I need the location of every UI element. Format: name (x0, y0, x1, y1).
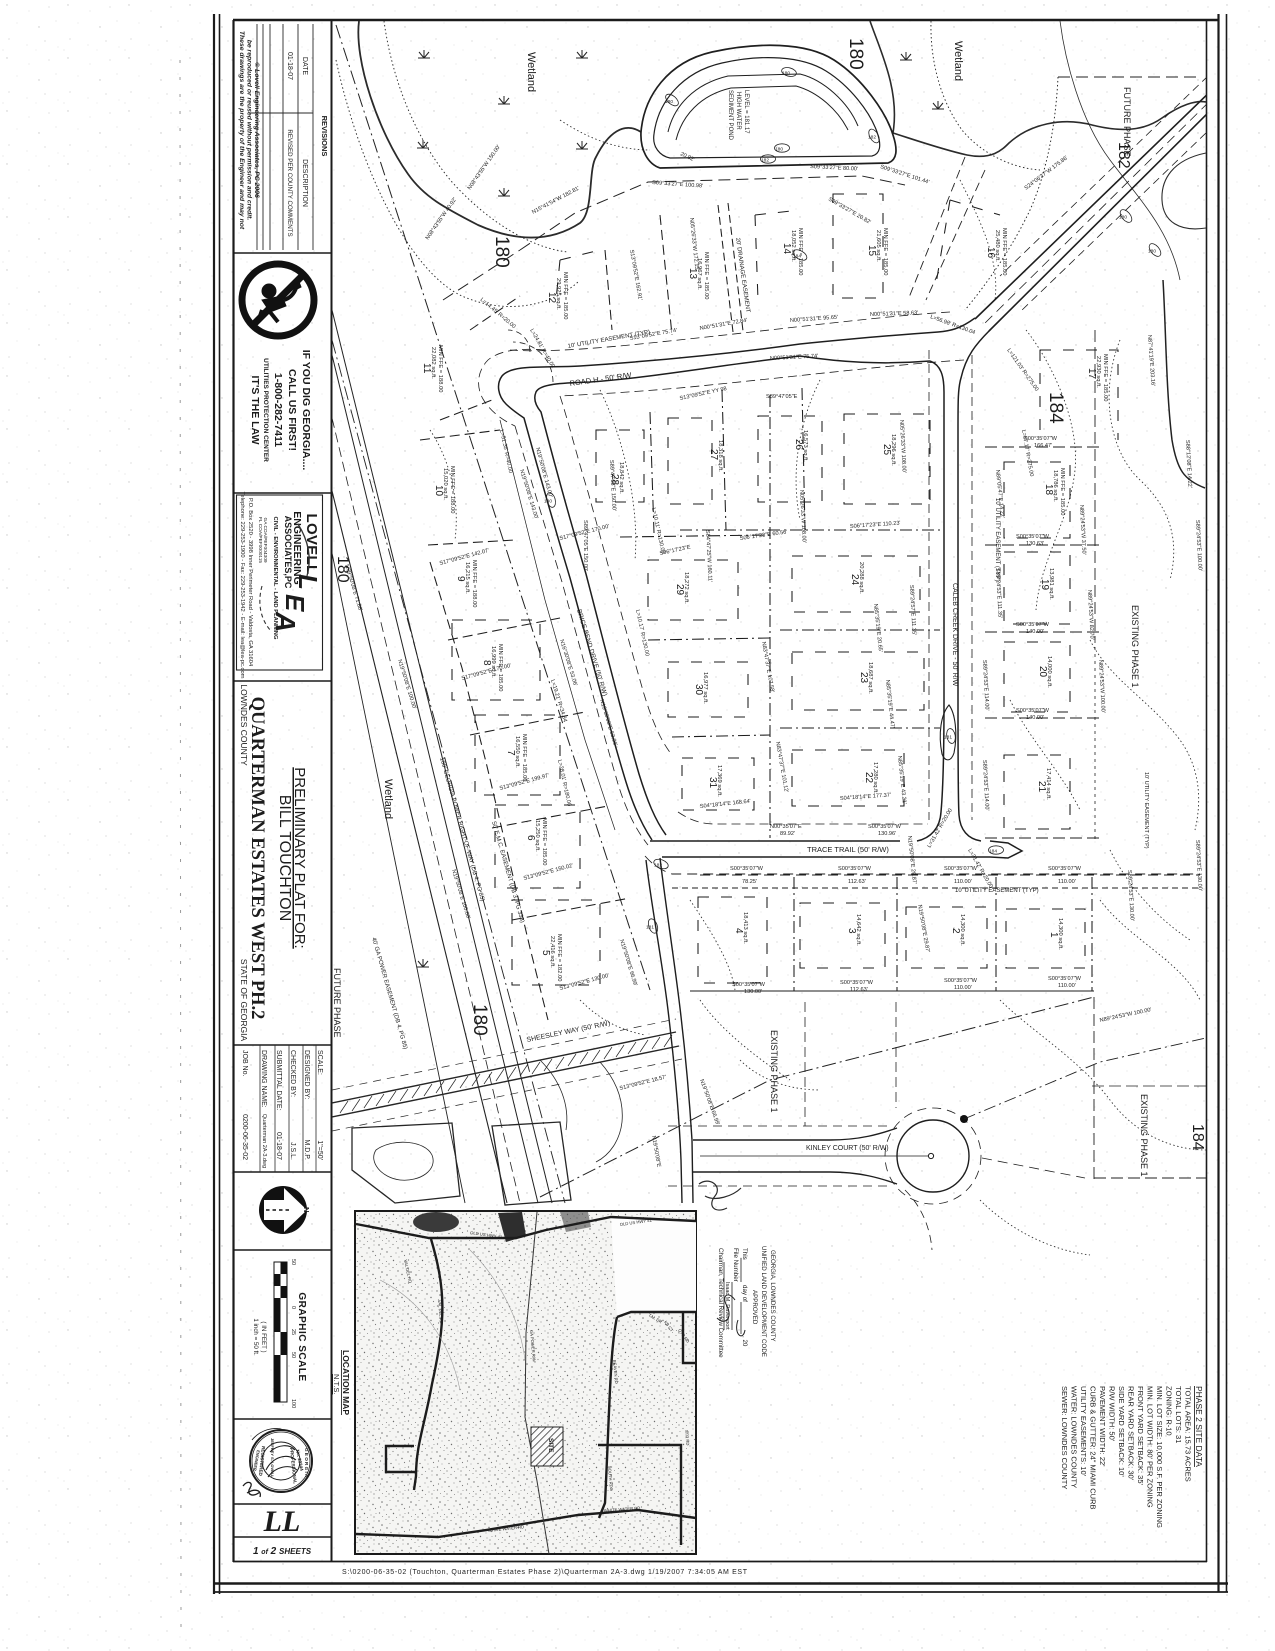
svg-text:KINLEY COURT (50' R/W): KINLEY COURT (50' R/W) (806, 1145, 889, 1152)
svg-text:S:\0200-06-35-02 (Touchton, Qu: S:\0200-06-35-02 (Touchton, Quarterman E… (342, 1569, 748, 1576)
svg-text:J.S.L.: J.S.L. (289, 1142, 296, 1160)
svg-text:MIN FFE = 185.00: MIN FFE = 185.00 (562, 272, 568, 320)
svg-text:This: This (741, 1248, 748, 1260)
svg-text:182: 182 (761, 158, 769, 164)
svg-text:0: 0 (290, 1306, 296, 1309)
svg-text:File Number: File Number (732, 1248, 739, 1282)
svg-text:REVISIONS: REVISIONS (320, 116, 329, 157)
svg-text:22,416 sq.ft.: 22,416 sq.ft. (549, 936, 555, 968)
svg-text:22,930 sq.ft.: 22,930 sq.ft. (1095, 356, 1101, 388)
svg-text:22,082 sq.ft.: 22,082 sq.ft. (430, 347, 436, 379)
svg-text:130.00': 130.00' (744, 989, 762, 995)
svg-text:These drawings are the propert: These drawings are the property of the E… (238, 31, 245, 230)
svg-text:14,300 sq.ft.: 14,300 sq.ft. (959, 914, 965, 946)
svg-text:IF YOU DIG GEORGIA....: IF YOU DIG GEORGIA.... (300, 350, 312, 471)
svg-text:day of: day of (741, 1285, 748, 1302)
svg-text:SEWER: LOWNDES COUNTY: SEWER: LOWNDES COUNTY (1060, 1386, 1069, 1489)
svg-text:be reproduced or reused withou: be reproduced or reused without permissi… (246, 40, 253, 221)
svg-text:181: 181 (944, 735, 952, 741)
svg-text:130.63': 130.63' (1026, 541, 1044, 547)
svg-text:180: 180 (775, 147, 783, 153)
svg-text:DRAWING NAME:: DRAWING NAME: (260, 1050, 267, 1108)
svg-text:100: 100 (290, 1399, 296, 1408)
svg-text:L: L (293, 574, 323, 590)
svg-text:S00°35'07"W: S00°35'07"W (868, 824, 902, 830)
svg-text:180: 180 (544, 499, 552, 505)
svg-text:18,786 sq.ft.: 18,786 sq.ft. (1052, 470, 1058, 502)
svg-text:P.O. Box 2520 - 3998 Inner P: P.O. Box 2520 - 3998 Inner Perimeter Roa… (247, 498, 253, 667)
svg-text:16,977 sq.ft.: 16,977 sq.ft. (702, 672, 708, 704)
svg-text:TOTAL AREA: 15.73 ACRES: TOTAL AREA: 15.73 ACRES (1184, 1386, 1193, 1482)
svg-text:MIN FFE = 188.00: MIN FFE = 188.00 (437, 345, 443, 393)
svg-text:78.25': 78.25' (742, 879, 757, 885)
svg-text:MIN FFE = 185.00: MIN FFE = 185.00 (521, 734, 527, 782)
svg-text:110.00': 110.00' (1058, 879, 1076, 885)
svg-text:S00°35'07"W: S00°35'07"W (944, 978, 978, 984)
svg-text:1 inch = 50 ft.: 1 inch = 50 ft. (252, 1318, 259, 1356)
svg-text:17,369 sq.ft.: 17,369 sq.ft. (716, 765, 722, 797)
svg-text:180: 180 (491, 236, 512, 268)
svg-text:CHECKED BY:: CHECKED BY: (289, 1050, 296, 1097)
svg-text:, 20: , 20 (741, 1336, 748, 1347)
svg-text:21,605 sq.ft.: 21,605 sq.ft. (875, 230, 881, 262)
svg-text:CALL US FIRST!: CALL US FIRST! (286, 369, 298, 451)
svg-text:UTILITY EASEMENTS: 10': UTILITY EASEMENTS: 10' (1079, 1386, 1088, 1477)
svg-text:166.47': 166.47' (1034, 443, 1052, 449)
svg-text:TRACE TRAIL (50' R/W): TRACE TRAIL (50' R/W) (807, 845, 889, 854)
svg-text:140.00': 140.00' (1026, 715, 1044, 721)
svg-text:UNIFIED LAND DEVELOPMENT CODE: UNIFIED LAND DEVELOPMENT CODE (760, 1246, 767, 1357)
svg-text:E: E (280, 594, 310, 612)
svg-text:180: 180 (469, 1004, 490, 1036)
svg-text:Wetland: Wetland (525, 52, 537, 92)
svg-text:LEVEL = 181.17: LEVEL = 181.17 (743, 90, 749, 134)
svg-text:SCALE:: SCALE: (316, 1050, 323, 1075)
svg-text:112.63': 112.63' (850, 987, 868, 993)
svg-text:STATE OF GEORGIA: STATE OF GEORGIA (239, 959, 249, 1042)
svg-text:MIN FFE = 185.00: MIN FFE = 185.00 (703, 252, 709, 300)
svg-text:QUARTERMAN ESTATES WEST PH.2: QUARTERMAN ESTATES WEST PH.2 (247, 697, 267, 1020)
svg-text:18,296 sq.ft.: 18,296 sq.ft. (890, 434, 896, 466)
svg-text:FRONT YARD SETBACK: 35': FRONT YARD SETBACK: 35' (1136, 1386, 1145, 1486)
svg-text:Wetland: Wetland (382, 779, 394, 819)
svg-text:MIN FFE = 185.00: MIN FFE = 185.00 (541, 818, 547, 866)
svg-text:01-18-07: 01-18-07 (275, 1132, 282, 1160)
svg-text:S00°35'07"W: S00°35'07"W (1016, 534, 1050, 540)
svg-text:16,573 sq.ft.: 16,573 sq.ft. (802, 430, 808, 462)
svg-text:( IN FEET ): ( IN FEET ) (260, 1321, 267, 1352)
svg-text:PHASE 2 SITE DATA: PHASE 2 SITE DATA (1194, 1386, 1204, 1467)
svg-text:MIN. LOT SIZE: 10,000 S.F. PER: MIN. LOT SIZE: 10,000 S.F. PER ZONING (1155, 1386, 1164, 1528)
svg-text:S00°35'07"W: S00°35'07"W (732, 982, 766, 988)
svg-text:184: 184 (1189, 1124, 1206, 1151)
svg-text:180: 180 (845, 38, 866, 70)
svg-text:01-18-07: 01-18-07 (286, 52, 293, 80)
svg-text:180: 180 (782, 71, 790, 77)
svg-text:25: 25 (290, 1329, 296, 1335)
svg-text:S00°35'07"W: S00°35'07"W (1048, 976, 1082, 982)
svg-text:SIDE YARD SETBACK: 10': SIDE YARD SETBACK: 10' (1117, 1386, 1126, 1477)
svg-text:SEDIMENT POND: SEDIMENT POND (727, 90, 733, 141)
svg-text:REVISED PER COUNTY COMMENTS: REVISED PER COUNTY COMMENTS (286, 129, 293, 236)
svg-text:M.D.P.: M.D.P. (303, 1140, 310, 1161)
svg-text:18,687 sq.ft.: 18,687 sq.ft. (867, 662, 873, 694)
svg-text:MIN FFE = 188.00: MIN FFE = 188.00 (471, 560, 477, 608)
svg-text:18,842 sq.ft.: 18,842 sq.ft. (618, 462, 624, 494)
svg-text:Chairman, Technical Review Com: Chairman, Technical Review Committee (717, 1248, 724, 1358)
svg-text:MIN FFE = 182.00: MIN FFE = 182.00 (556, 934, 562, 982)
svg-text:18,318 sq.ft.: 18,318 sq.ft. (717, 440, 723, 472)
svg-text:17,280 sq.ft.: 17,280 sq.ft. (872, 762, 878, 794)
svg-text:REAR YARD SETBACK: 30': REAR YARD SETBACK: 30' (1127, 1386, 1136, 1481)
svg-text:GEORGIA, LOWNDES COUNTY: GEORGIA, LOWNDES COUNTY (769, 1250, 776, 1341)
svg-text:APPROVED: APPROVED (751, 1290, 758, 1325)
svg-text:TOTAL LOTS: 31: TOTAL LOTS: 31 (1174, 1386, 1183, 1443)
svg-text:25,480 sq.ft.: 25,480 sq.ft. (994, 230, 1000, 262)
svg-text:S00°35'07"W: S00°35'07"W (840, 980, 874, 986)
svg-text:DESIGNED BY:: DESIGNED BY: (303, 1050, 310, 1099)
svg-text:180: 180 (1148, 249, 1156, 255)
svg-text:1"=50': 1"=50' (316, 1140, 323, 1160)
svg-text:LOWNDES COUNTY: LOWNDES COUNTY (239, 684, 249, 766)
svg-text:LOVELL: LOVELL (303, 514, 320, 575)
svg-text:ZONING: R-10: ZONING: R-10 (1165, 1386, 1174, 1436)
svg-text:Telephone: 229-253-1900 - Fax:: Telephone: 229-253-1900 - Fax: 229-253-1… (239, 492, 245, 679)
svg-text:18,272 sq.ft.: 18,272 sq.ft. (683, 572, 689, 604)
svg-text:182: 182 (868, 135, 876, 141)
svg-text:DESCRIPTION: DESCRIPTION (301, 159, 308, 207)
svg-text:ASSOCIATES,PC: ASSOCIATES,PC (283, 516, 293, 589)
svg-text:SUBMITTAL DATE:: SUBMITTAL DATE: (275, 1050, 282, 1111)
svg-text:JEFFREY S. LOVELL: JEFFREY S. LOVELL (270, 1438, 275, 1478)
svg-text:FL COA/PEF0000115: FL COA/PEF0000115 (257, 517, 263, 563)
svg-text:Quarterman 2A-3.dwg: Quarterman 2A-3.dwg (261, 1114, 267, 1168)
svg-text:14,000 sq.ft.: 14,000 sq.ft. (1046, 656, 1052, 688)
svg-text:184: 184 (989, 849, 997, 855)
svg-text:182: 182 (654, 863, 662, 869)
svg-text:130.96': 130.96' (878, 831, 896, 837)
svg-text:MIN FFE = 185.00: MIN FFE = 185.00 (882, 228, 888, 276)
svg-text:JOB No.: JOB No. (241, 1050, 248, 1077)
svg-text:MIN FFE = 188.00: MIN FFE = 188.00 (449, 466, 455, 514)
svg-text:180: 180 (665, 99, 673, 105)
svg-text:13,981 sq.ft.: 13,981 sq.ft. (1048, 568, 1054, 600)
svg-text:BILL TOUCHTON: BILL TOUCHTON (276, 795, 293, 922)
svg-text:R/W WIDTH: 50': R/W WIDTH: 50' (1108, 1386, 1117, 1442)
svg-text:S00°35'07"W: S00°35'07"W (1024, 436, 1058, 442)
svg-text:S00°35'07"W: S00°35'07"W (730, 866, 764, 872)
svg-text:WATER: LOWNDES COUNTY: WATER: LOWNDES COUNTY (1070, 1386, 1079, 1488)
svg-text:180: 180 (1119, 215, 1127, 221)
svg-text:110.00': 110.00' (954, 879, 972, 885)
svg-text:14,300 sq.ft.: 14,300 sq.ft. (1057, 918, 1063, 950)
svg-text:N00°35'07"E: N00°35'07"E (770, 824, 802, 830)
svg-text:15,250 sq.ft.: 15,250 sq.ft. (534, 820, 540, 852)
svg-text:FUTURE PHASE: FUTURE PHASE (332, 968, 342, 1038)
svg-text:EXISTING PHASE 1: EXISTING PHASE 1 (1139, 1094, 1149, 1177)
svg-text:S00°35'07"W: S00°35'07"W (1016, 622, 1050, 628)
svg-text:HIGH WATER: HIGH WATER (735, 92, 741, 130)
svg-text:MIN FFE = 185.00: MIN FFE = 185.00 (1001, 228, 1007, 276)
svg-text:14,642 sq.ft.: 14,642 sq.ft. (855, 914, 861, 946)
svg-text:S00°35'07"W: S00°35'07"W (1016, 708, 1050, 714)
svg-text:LOCATION MAP: LOCATION MAP (341, 1350, 351, 1415)
svg-text:15,020 sq.ft.: 15,020 sq.ft. (442, 468, 448, 500)
svg-text:CIVIL - ENVIRONMENTAL - LAND P: CIVIL - ENVIRONMENTAL - LAND PLANNING (272, 516, 278, 640)
svg-text:181: 181 (646, 925, 654, 931)
svg-text:50: 50 (290, 1352, 296, 1358)
svg-text:LL: LL (263, 1505, 301, 1538)
svg-text:S00°35'07"W: S00°35'07"W (944, 866, 978, 872)
svg-text:17,414 sq.ft.: 17,414 sq.ft. (1045, 768, 1051, 800)
svg-text:CALEB CREEK DRIVE - 50' R/W: CALEB CREEK DRIVE - 50' R/W (951, 583, 958, 687)
svg-text:140.00': 140.00' (1026, 629, 1044, 635)
svg-text:EXISTING PHASE 1: EXISTING PHASE 1 (769, 1030, 779, 1113)
svg-text:Wetland: Wetland (952, 41, 964, 81)
svg-text:DATE: DATE (301, 57, 308, 75)
svg-text:10' UTILITY EASEMENT (TYP): 10' UTILITY EASEMENT (TYP) (955, 888, 1039, 894)
svg-text:MIN FFE = 185.00: MIN FFE = 185.00 (1059, 468, 1065, 516)
svg-text:18,413 sq.ft.: 18,413 sq.ft. (742, 912, 748, 944)
svg-text:16,550 sq.ft.: 16,550 sq.ft. (514, 736, 520, 768)
svg-text:1-800-282-7411: 1-800-282-7411 (272, 373, 284, 447)
svg-text:G E O R G I A: G E O R G I A (304, 1448, 309, 1478)
svg-text:S00°35'07"W: S00°35'07"W (838, 866, 872, 872)
svg-text:© Lovell Engineering Associate: © Lovell Engineering Associates, PC 2006 (253, 62, 261, 198)
svg-text:N: N (302, 1207, 311, 1212)
svg-text:184: 184 (793, 254, 801, 260)
svg-text:GRAPHIC SCALE: GRAPHIC SCALE (296, 1292, 307, 1381)
svg-text:SITE: SITE (547, 1438, 554, 1453)
svg-text:16,215 sq.ft.: 16,215 sq.ft. (464, 562, 470, 594)
svg-text:IT'S THE LAW: IT'S THE LAW (249, 376, 261, 445)
svg-text:112.63': 112.63' (848, 879, 866, 885)
svg-text:110.00': 110.00' (954, 985, 972, 991)
svg-text:PAVEMENT WIDTH: 22': PAVEMENT WIDTH: 22' (1098, 1386, 1107, 1467)
svg-text:184: 184 (1045, 392, 1066, 424)
svg-text:29,925 sq.ft.: 29,925 sq.ft. (555, 278, 561, 310)
svg-text:0200-06-35-02: 0200-06-35-02 (241, 1114, 248, 1160)
svg-text:MIN FFE = 185.00: MIN FFE = 185.00 (1102, 354, 1108, 402)
svg-text:EXISTING PHASE 1: EXISTING PHASE 1 (1130, 605, 1140, 688)
svg-text:CURB & GUTTER: 24" MIAMI CURB: CURB & GUTTER: 24" MIAMI CURB (1089, 1386, 1098, 1510)
svg-text:110.00': 110.00' (1058, 983, 1076, 989)
svg-text:89.92': 89.92' (780, 831, 795, 837)
svg-text:10' UTILITY EASEMENT (TYP): 10' UTILITY EASEMENT (TYP) (1143, 772, 1149, 849)
svg-text:UTILITIES PROTECTION CENTER: UTILITIES PROTECTION CENTER (262, 358, 269, 462)
svg-text:FUTURE PHASE: FUTURE PHASE (1122, 87, 1132, 157)
svg-text:S89°47'05"E 150.00': S89°47'05"E 150.00' (582, 520, 588, 571)
svg-text:S00°35'07"W: S00°35'07"W (1048, 866, 1082, 872)
svg-text:20,288 sq.ft.: 20,288 sq.ft. (858, 562, 864, 594)
svg-text:S89°47'05"E: S89°47'05"E (766, 394, 798, 400)
svg-text:N.T.S.: N.T.S. (332, 1374, 341, 1394)
svg-text:50: 50 (290, 1259, 296, 1265)
svg-text:MIN. LOT WIDTH: 80' PER ZONING: MIN. LOT WIDTH: 80' PER ZONING (1146, 1386, 1155, 1508)
